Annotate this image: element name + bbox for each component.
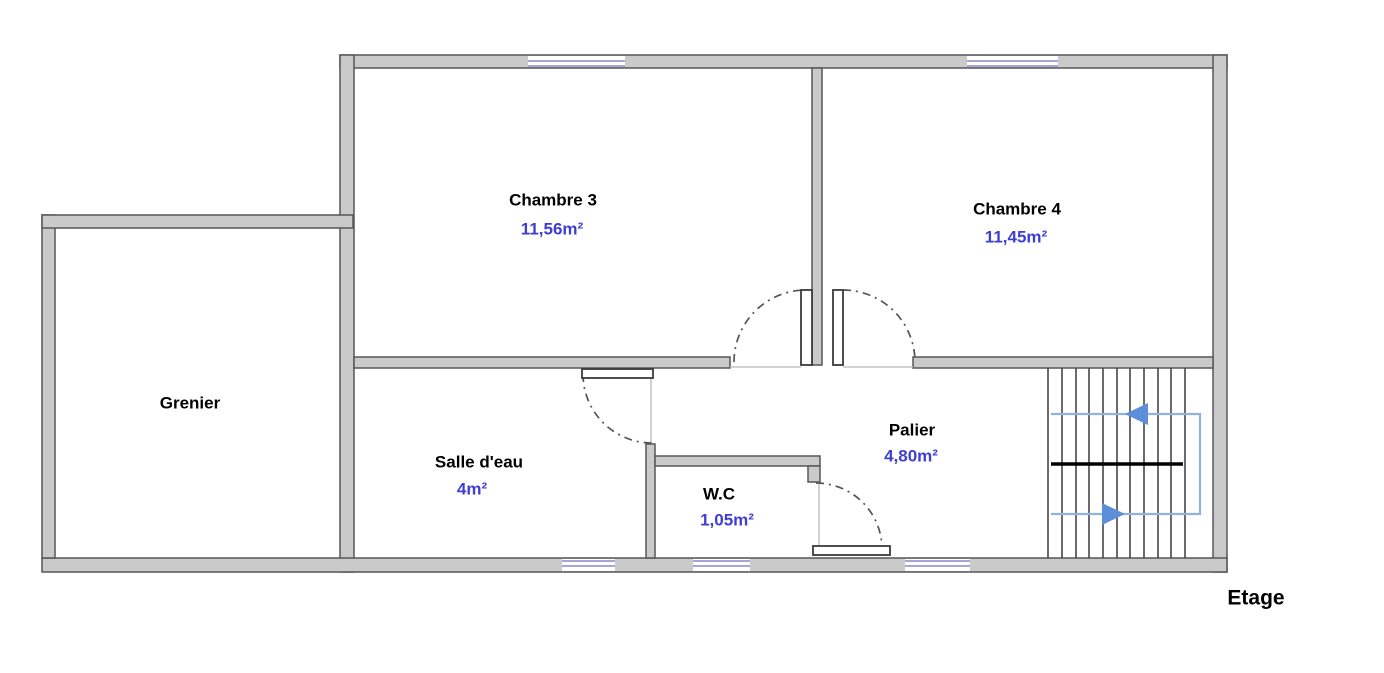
room-label-salle-deau: Salle d'eau	[435, 454, 523, 471]
wall-wc-top-jamb	[808, 466, 820, 482]
wall-chambre-divider	[812, 68, 822, 365]
room-area-chambre-4: 11,45m²	[985, 229, 1047, 246]
floor-level-label: Etage	[1227, 588, 1284, 609]
floor-plan-page: Chambre 3 11,56m² Chambre 4 11,45m² Gren…	[0, 0, 1384, 673]
door-arc-wc	[816, 483, 882, 549]
door-leaf-chambre4	[833, 290, 843, 365]
wall-grenier-left	[42, 215, 55, 558]
door-leaf-chambre3	[801, 290, 812, 365]
wall-top-exterior	[340, 55, 1227, 68]
room-label-wc: W.C	[703, 486, 735, 503]
wall-grenier-top	[42, 215, 353, 228]
room-label-chambre-4: Chambre 4	[973, 201, 1061, 218]
wall-wc-top	[655, 456, 820, 466]
wall-mid-right-segment	[913, 357, 1213, 368]
door-leaf-salledeau	[582, 369, 653, 378]
wall-bottom-exterior	[42, 558, 1227, 572]
room-area-chambre-3: 11,56m²	[521, 221, 583, 238]
room-area-wc: 1,05m²	[700, 512, 754, 529]
door-arc-chambre3	[734, 290, 806, 362]
door-arc-salledeau	[583, 374, 652, 443]
wall-left-vertical	[340, 55, 354, 572]
wall-salledeau-wc-divider	[646, 444, 655, 558]
wall-mid-left-segment	[354, 357, 730, 368]
stair-arrow-up	[1125, 403, 1148, 425]
door-leaf-wc	[813, 546, 890, 555]
wall-right-exterior	[1213, 55, 1227, 572]
door-arc-chambre4	[843, 290, 915, 362]
room-label-palier: Palier	[889, 422, 935, 439]
room-label-grenier: Grenier	[160, 395, 220, 412]
stair-arrow-down	[1102, 503, 1125, 525]
room-area-palier: 4,80m²	[884, 448, 938, 465]
room-area-salle-deau: 4m²	[457, 481, 487, 498]
floor-plan-drawing	[0, 0, 1384, 673]
room-label-chambre-3: Chambre 3	[509, 192, 597, 209]
